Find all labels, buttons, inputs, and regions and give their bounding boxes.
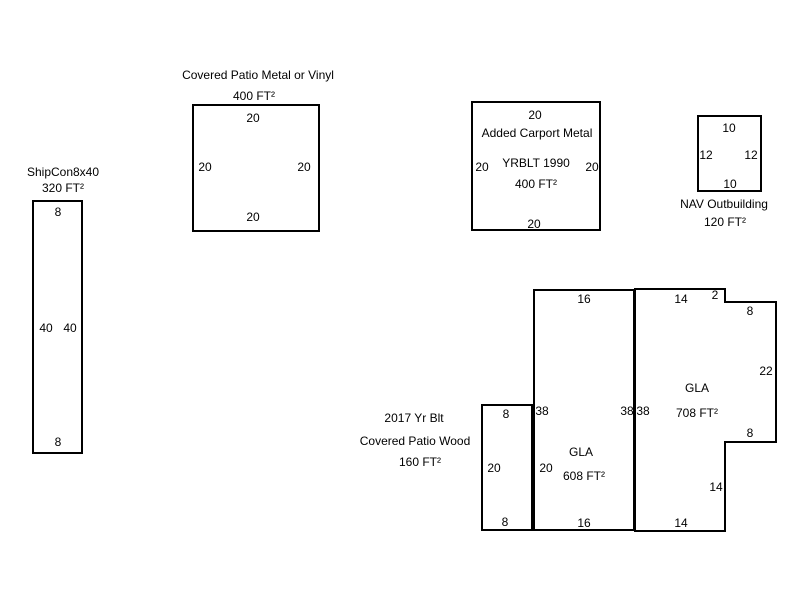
dimension-label-covered-patio-metal-or-vinyl: 20 <box>297 161 310 173</box>
dimension-label-gla-608: 16 <box>577 293 590 305</box>
dimension-label-gla-608: 16 <box>577 517 590 529</box>
dimension-label-gla-708: 14 <box>674 293 687 305</box>
dimension-label-gla-708: GLA <box>685 382 709 394</box>
dimension-label-gla-708: 14 <box>709 481 722 493</box>
dimension-label-shipcon-8x40: 8 <box>55 436 62 448</box>
dimension-label-covered-patio-wood: 8 <box>503 408 510 420</box>
dimension-label-gla-608: 38 <box>535 405 548 417</box>
dimension-label-added-carport-metal: 20 <box>585 161 598 173</box>
dimension-label-covered-patio-metal-or-vinyl: 20 <box>198 161 211 173</box>
shape-title-nav-outbuilding: 120 FT² <box>704 216 746 228</box>
dimension-label-gla-708: 22 <box>759 365 772 377</box>
dimension-label-added-carport-metal: 400 FT² <box>515 178 557 190</box>
shape-title-nav-outbuilding: NAV Outbuilding <box>680 198 768 210</box>
dimension-label-nav-outbuilding: 10 <box>723 178 736 190</box>
dimension-label-added-carport-metal: 20 <box>528 109 541 121</box>
shape-title-covered-patio-metal-or-vinyl: 400 FT² <box>233 90 275 102</box>
dimension-label-gla-708: 38 <box>636 405 649 417</box>
dimension-label-added-carport-metal: Added Carport Metal <box>482 127 593 139</box>
dimension-label-shipcon-8x40: 8 <box>55 206 62 218</box>
dimension-label-shipcon-8x40: 40 <box>39 322 52 334</box>
dimension-label-nav-outbuilding: 10 <box>722 122 735 134</box>
dimension-label-nav-outbuilding: 12 <box>699 149 712 161</box>
dimension-label-covered-patio-metal-or-vinyl: 20 <box>246 112 259 124</box>
dimension-label-added-carport-metal: 20 <box>475 161 488 173</box>
dimension-label-gla-708: 8 <box>747 427 754 439</box>
shape-title-covered-patio-wood: 160 FT² <box>399 456 441 468</box>
dimension-label-gla-608: GLA <box>569 446 593 458</box>
dimension-label-gla-608: 20 <box>539 462 552 474</box>
dimension-label-added-carport-metal: 20 <box>527 218 540 230</box>
shape-title-covered-patio-wood: Covered Patio Wood <box>360 435 471 447</box>
dimension-label-nav-outbuilding: 12 <box>744 149 757 161</box>
dimension-label-gla-708: 8 <box>747 305 754 317</box>
dimension-label-added-carport-metal: YRBLT 1990 <box>502 157 570 169</box>
sketch-canvas: ShipCon8x40320 FT²840408Covered Patio Me… <box>0 0 800 600</box>
dimension-label-gla-608: 608 FT² <box>563 470 605 482</box>
dimension-label-covered-patio-wood: 20 <box>487 462 500 474</box>
dimension-label-covered-patio-wood: 8 <box>502 516 509 528</box>
dimension-label-gla-708: 14 <box>674 517 687 529</box>
dimension-label-covered-patio-metal-or-vinyl: 20 <box>246 211 259 223</box>
dimension-label-gla-708: 2 <box>712 289 719 301</box>
shape-title-covered-patio-wood: 2017 Yr Blt <box>384 412 443 424</box>
dimension-label-gla-708: 708 FT² <box>676 407 718 419</box>
shape-title-shipcon-8x40: 320 FT² <box>42 182 84 194</box>
shape-title-shipcon-8x40: ShipCon8x40 <box>27 166 99 178</box>
dimension-label-gla-608: 38 <box>620 405 633 417</box>
shape-title-covered-patio-metal-or-vinyl: Covered Patio Metal or Vinyl <box>182 69 334 81</box>
dimension-label-shipcon-8x40: 40 <box>63 322 76 334</box>
